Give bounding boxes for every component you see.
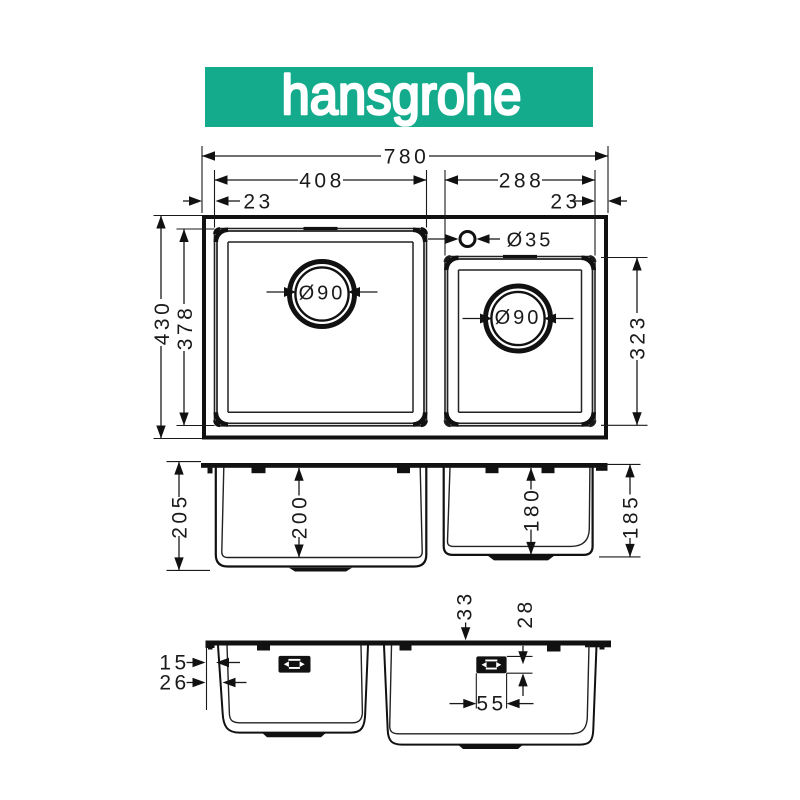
svg-text:23: 23 bbox=[550, 191, 580, 214]
svg-text:23: 23 bbox=[243, 191, 273, 214]
svg-text:430: 430 bbox=[151, 300, 174, 346]
svg-text:408: 408 bbox=[299, 170, 345, 193]
svg-text:hansgrohe: hansgrohe bbox=[282, 63, 522, 126]
svg-text:200: 200 bbox=[289, 494, 312, 540]
svg-text:180: 180 bbox=[521, 487, 544, 533]
svg-text:780: 780 bbox=[384, 146, 430, 169]
svg-text:288: 288 bbox=[499, 170, 545, 193]
svg-text:28: 28 bbox=[514, 598, 537, 628]
svg-text:55: 55 bbox=[476, 693, 506, 716]
svg-text:Ø35: Ø35 bbox=[507, 230, 554, 252]
svg-text:323: 323 bbox=[627, 314, 650, 360]
svg-text:205: 205 bbox=[169, 493, 192, 539]
svg-text:33: 33 bbox=[454, 590, 477, 620]
svg-text:378: 378 bbox=[174, 305, 197, 351]
svg-text:Ø90: Ø90 bbox=[299, 283, 346, 305]
svg-text:Ø90: Ø90 bbox=[495, 307, 542, 329]
svg-text:26: 26 bbox=[159, 672, 189, 695]
svg-text:185: 185 bbox=[620, 494, 643, 540]
